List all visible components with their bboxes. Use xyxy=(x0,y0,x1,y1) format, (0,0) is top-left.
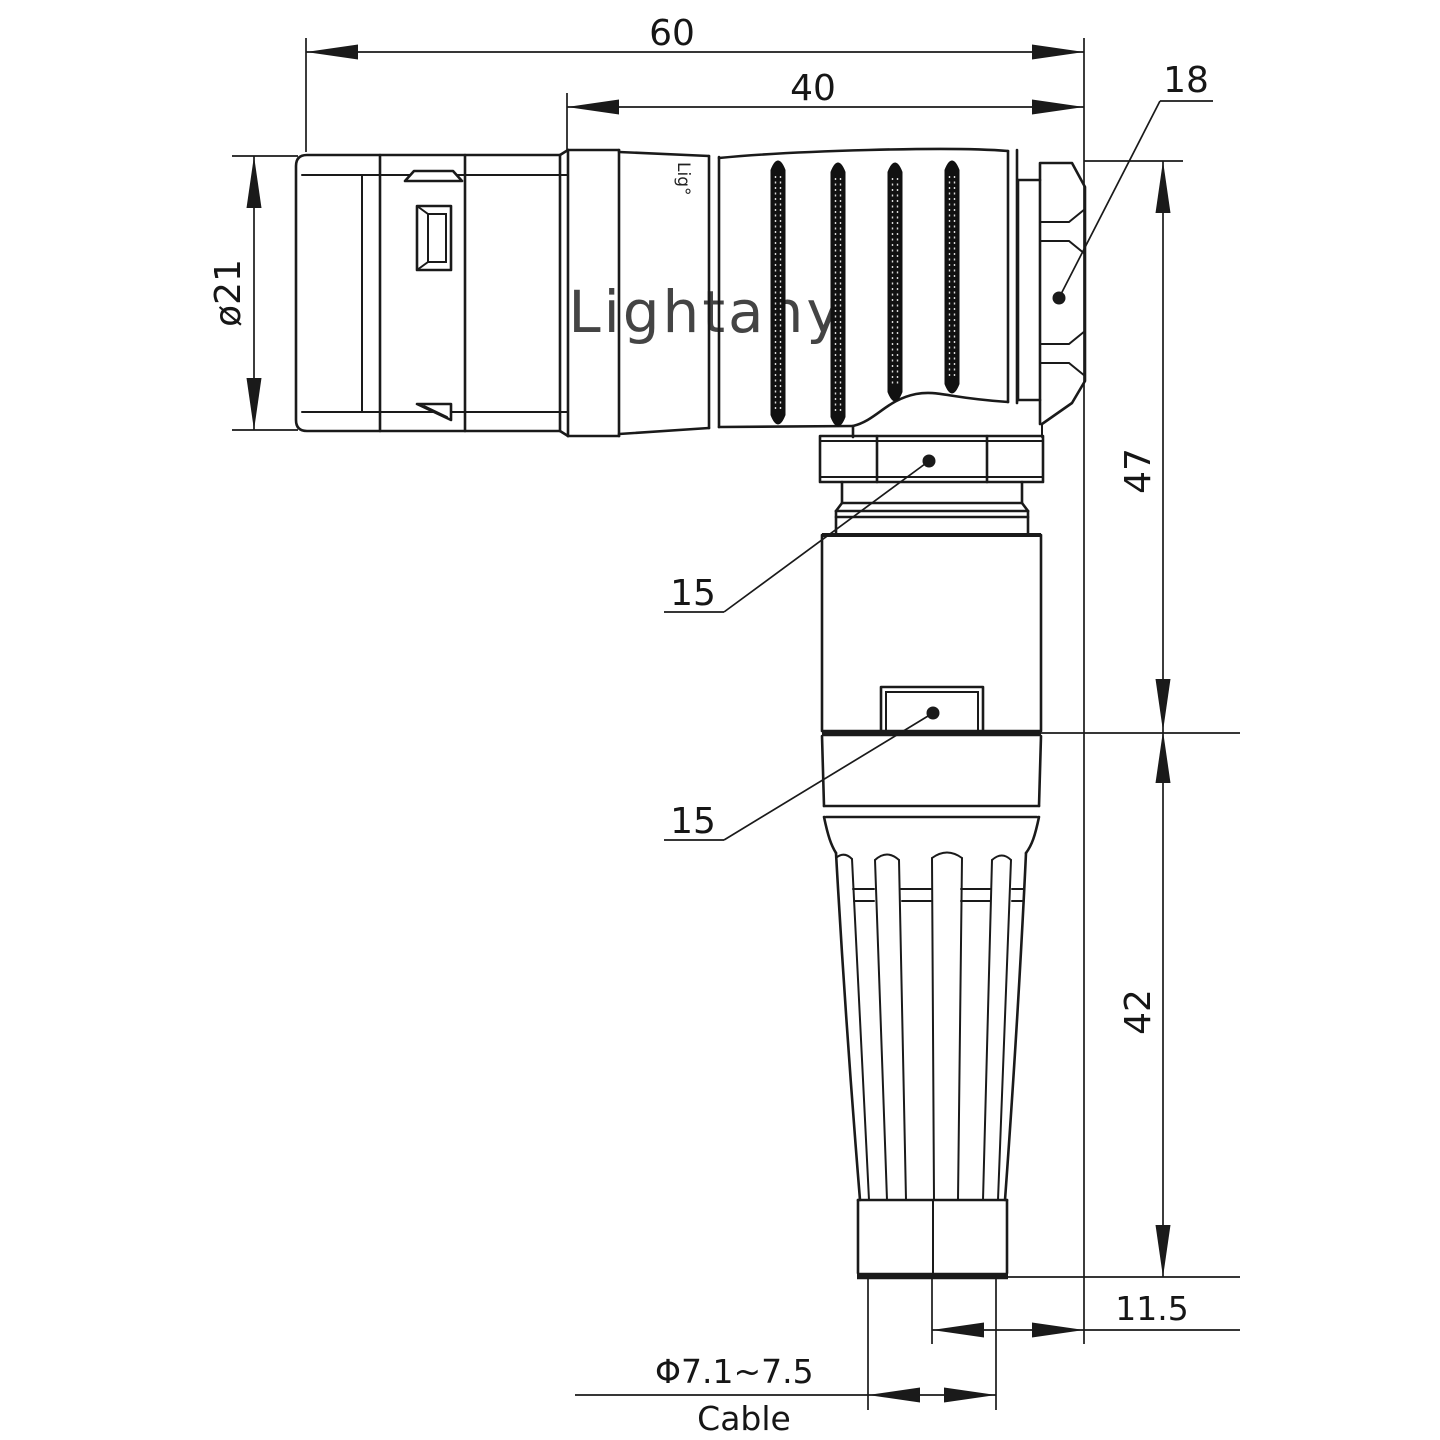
boot-bottom-edge xyxy=(719,426,853,427)
dim-label-15-upper: 15 xyxy=(670,573,716,614)
dim-label-15-lower: 15 xyxy=(670,801,716,842)
dim-shell-diameter-21: ø21 xyxy=(208,156,298,430)
leader-nut-18: 18 xyxy=(1053,60,1214,305)
dim-label-47: 47 xyxy=(1118,448,1159,494)
shell-outline xyxy=(296,155,560,431)
dim-label-42: 42 xyxy=(1118,989,1159,1035)
dim-label-dia21: ø21 xyxy=(208,259,249,327)
knurl-strip xyxy=(771,161,785,424)
latch-window xyxy=(417,206,451,270)
dim-label-cable-diameter: Φ7.1~7.5 xyxy=(655,1352,814,1391)
dim-label-cable: Cable xyxy=(697,1399,791,1438)
knurl-strip xyxy=(945,161,959,393)
leader-dot xyxy=(1053,292,1066,305)
dim-label-11-5: 11.5 xyxy=(1115,1289,1188,1328)
dim-length-42: 42 xyxy=(1007,731,1240,1277)
leader-dot xyxy=(923,455,936,468)
elbow-curve xyxy=(853,393,1008,426)
dim-label-18: 18 xyxy=(1163,60,1209,101)
dim-height-47: 47 xyxy=(1084,161,1183,731)
leader-dot xyxy=(927,707,940,720)
dim-label-40: 40 xyxy=(790,68,836,109)
watermark-text: Lightany xyxy=(568,278,843,346)
knurl-strip xyxy=(888,163,902,401)
leader-lower-hex-15: 15 xyxy=(664,707,940,843)
knurl-strip xyxy=(831,163,845,426)
strain-relief xyxy=(836,853,1026,1201)
watermark: Lightany xyxy=(568,278,843,346)
dim-offset-11-5: 11.5 xyxy=(932,1278,1240,1344)
vertical-connector-outline xyxy=(820,436,1043,1276)
dim-rear-length-40: 40 xyxy=(567,68,1084,150)
alignment-nub xyxy=(405,171,462,181)
dim-label-60: 60 xyxy=(649,13,695,54)
connector-dimension-drawing: Lightany xyxy=(0,0,1440,1440)
brand-mark-text: Lig° xyxy=(673,162,693,196)
boot-top-edge xyxy=(719,149,1008,158)
dim-overall-length-60: 60 xyxy=(306,13,1084,152)
washer-ring xyxy=(1018,180,1040,400)
cable-collar xyxy=(857,1200,1008,1276)
technical-drawing-page: Lightany xyxy=(0,0,1440,1440)
